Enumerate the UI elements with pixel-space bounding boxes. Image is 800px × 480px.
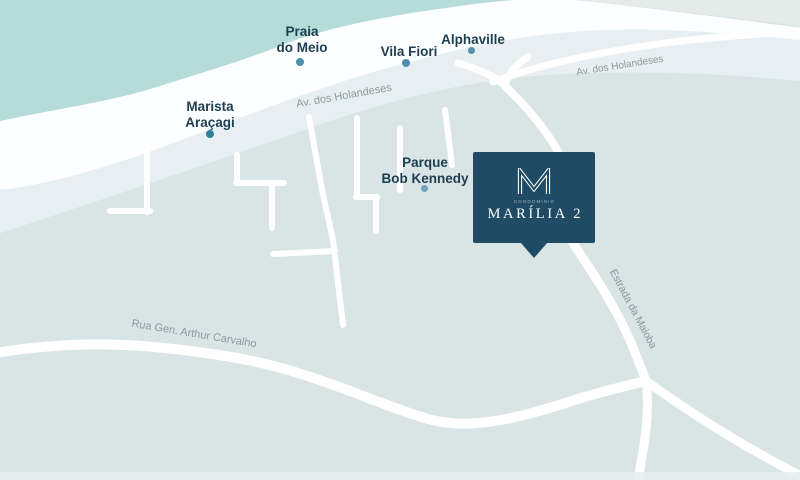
map-base-graphics [0, 0, 800, 480]
place-label-alphaville: Alphaville [441, 32, 505, 48]
place-label-line: Vila Fiori [381, 44, 438, 60]
place-label-vila-fiori: Vila Fiori [381, 44, 438, 60]
place-label-line: do Meio [277, 40, 328, 56]
place-dot-praia-do-meio [296, 58, 304, 66]
place-label-marista-aracagi: Marista Araçagi [185, 99, 235, 131]
place-label-line: Alphaville [441, 32, 505, 48]
place-label-line: Parque [381, 155, 468, 171]
place-dot-marista-aracagi [206, 130, 214, 138]
bottom-edge-strip [0, 472, 800, 480]
place-dot-vila-fiori [402, 59, 410, 67]
marker-brand-text: CONDOMÍNIO [473, 199, 595, 204]
location-map: Praia do Meio Vila Fiori Alphaville Mari… [0, 0, 800, 480]
place-label-line: Marista [185, 99, 235, 115]
marker-condo-name: MARÍLIA 2 [473, 206, 595, 223]
place-dot-alphaville [468, 47, 475, 54]
place-label-parque-bob-kennedy: Parque Bob Kennedy [381, 155, 468, 187]
place-dot-parque-bob-kennedy [421, 185, 428, 192]
place-label-praia-do-meio: Praia do Meio [277, 24, 328, 56]
place-label-line: Praia [277, 24, 328, 40]
marker-pointer [520, 242, 548, 258]
marilia-2-map-marker: CONDOMÍNIO MARÍLIA 2 [473, 152, 595, 243]
place-label-line: Araçagi [185, 115, 235, 131]
m-monogram-icon [517, 168, 551, 196]
